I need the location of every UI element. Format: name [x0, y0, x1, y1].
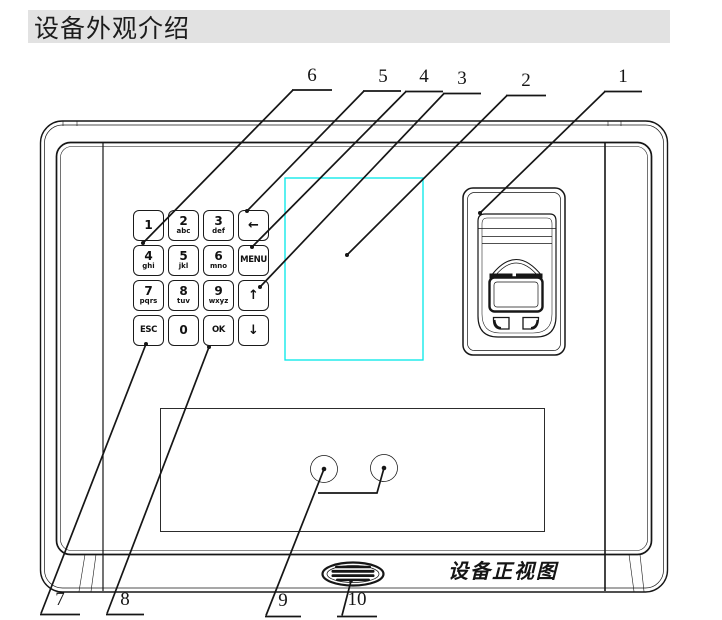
indicator-led-right — [371, 455, 398, 482]
key-5: 5jkl — [168, 245, 199, 276]
callout-5: 5 — [365, 67, 401, 87]
device-front-view-drawing — [0, 0, 722, 620]
key-8: 8tuv — [168, 280, 199, 311]
key-3: 3def — [203, 210, 234, 241]
key-up: ↑ — [238, 280, 269, 311]
key-2: 2abc — [168, 210, 199, 241]
callout-3: 3 — [444, 69, 480, 89]
callout-10: 10 — [339, 590, 375, 610]
device-outer-case-inner-line — [45, 125, 664, 588]
callout-2: 2 — [508, 71, 544, 91]
key-backspace: ← — [238, 210, 269, 241]
callout-4: 4 — [406, 67, 442, 87]
lcd-screen-outline — [285, 178, 423, 360]
arrow-down-icon: ↓ — [248, 325, 259, 336]
key-4: 4ghi — [133, 245, 164, 276]
key-0: 0 — [168, 315, 199, 346]
fingerprint-sensor — [463, 188, 565, 355]
callout-6: 6 — [294, 66, 330, 86]
lower-panel — [161, 409, 545, 532]
key-9: 9wxyz — [203, 280, 234, 311]
arrow-up-icon: ↑ — [248, 290, 259, 301]
key-down: ↓ — [238, 315, 269, 346]
device-face-plate-inner-line — [61, 147, 648, 551]
key-esc: ESC — [133, 315, 164, 346]
corner-seams — [63, 122, 644, 592]
callout-8: 8 — [107, 590, 143, 610]
callout-1: 1 — [605, 67, 641, 87]
backspace-icon: ← — [248, 220, 259, 231]
indicator-led-left — [311, 456, 338, 483]
manual-page: 设备外观介绍 — [0, 0, 722, 620]
speaker-grille — [323, 563, 384, 586]
callout-7: 7 — [42, 590, 78, 610]
key-menu: MENU — [238, 245, 269, 276]
fingerprint-window — [490, 278, 543, 312]
key-6: 6mno — [203, 245, 234, 276]
figure-caption: 设备正视图 — [448, 555, 578, 584]
keypad: 1 2abc 3def ← 4ghi 5jkl 6mno MENU 7pqrs … — [133, 210, 269, 346]
key-1: 1 — [133, 210, 164, 241]
key-ok: OK — [203, 315, 234, 346]
device-face-plate — [57, 143, 652, 555]
callout-9: 9 — [265, 591, 301, 611]
key-7: 7pqrs — [133, 280, 164, 311]
device-outer-case — [41, 121, 668, 592]
